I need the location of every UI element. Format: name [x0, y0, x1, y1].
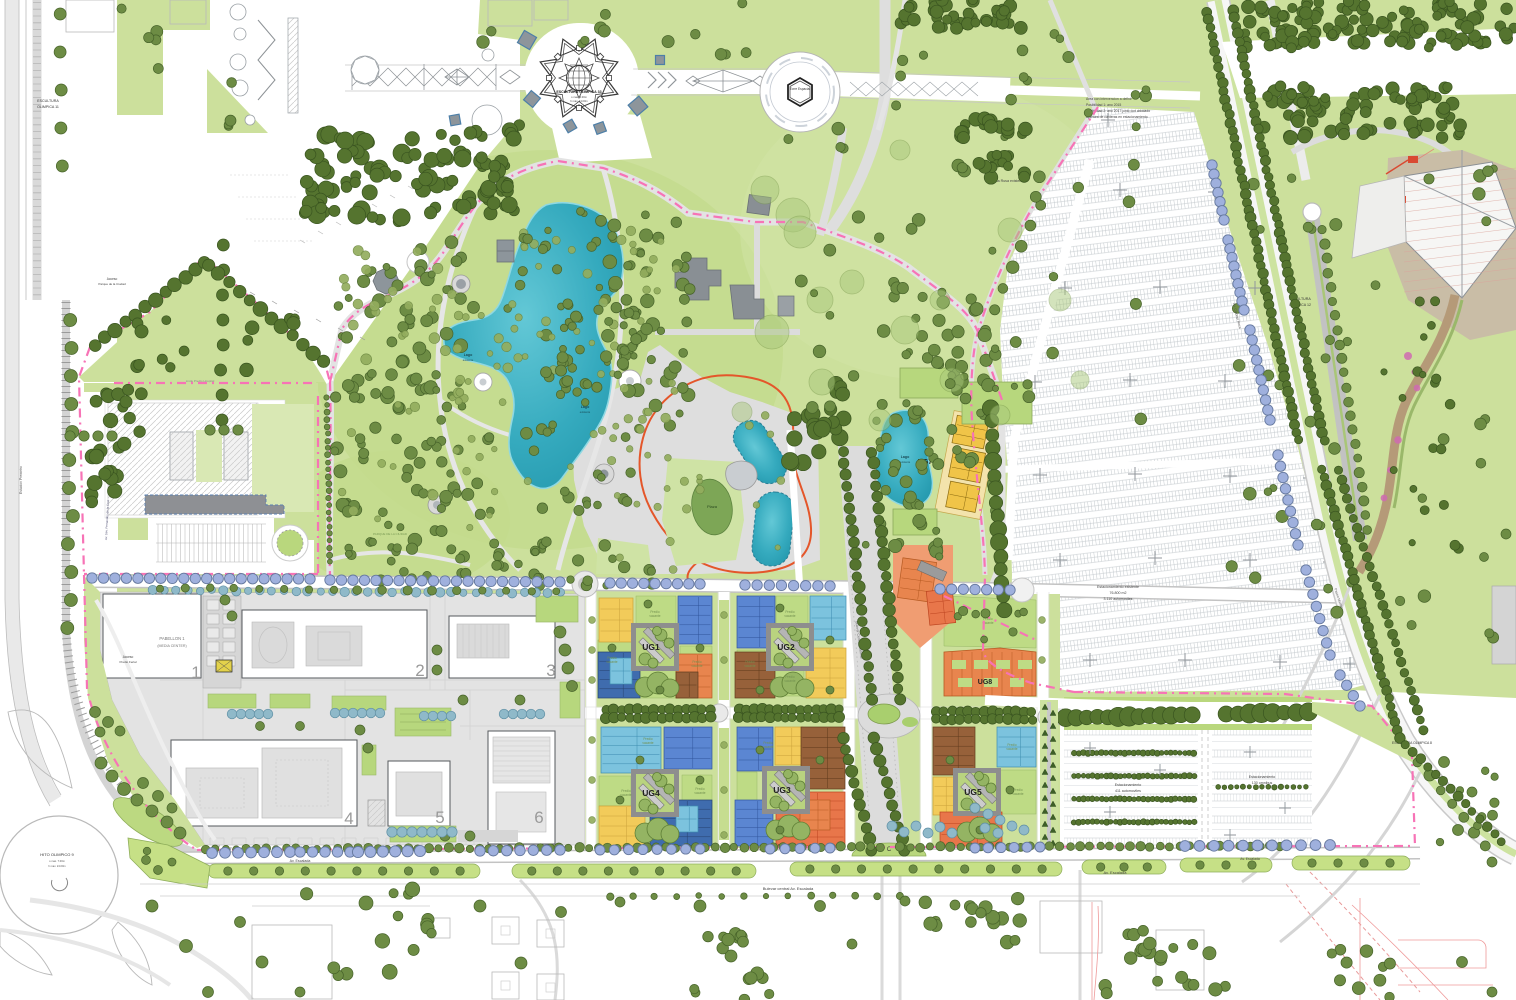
svg-text:411 automoviles: 411 automoviles: [1115, 789, 1141, 793]
svg-text:h max. 44.00m: h max. 44.00m: [570, 99, 587, 103]
svg-text:o max. 5.00m: o max. 5.00m: [571, 95, 587, 99]
svg-text:o max. 7.00m: o max. 7.00m: [49, 859, 65, 863]
svg-text:1: 1: [191, 663, 200, 682]
svg-text:OLIMPICA 11: OLIMPICA 11: [37, 105, 59, 109]
svg-text:Estacionamiento existente: Estacionamiento existente: [1097, 585, 1139, 589]
svg-text:existente: existente: [900, 460, 911, 464]
svg-text:UG8: UG8: [978, 679, 993, 686]
svg-text:Av. Escalada: Av. Escalada: [1240, 857, 1260, 861]
svg-text:Area con intervencion a defini: Area con intervencion a definir: [1086, 97, 1133, 101]
svg-text:vacante: vacante: [784, 679, 795, 683]
svg-text:vacante: vacante: [694, 791, 705, 795]
svg-text:5: 5: [435, 808, 444, 827]
svg-text:Bulevar central Av. Escalada: Bulevar central Av. Escalada: [763, 886, 814, 891]
svg-text:Acceso: Acceso: [107, 277, 118, 281]
svg-text:h max. 24.00m: h max. 24.00m: [48, 864, 65, 868]
svg-text:ESCULTURA OLIMPICA 33: ESCULTURA OLIMPICA 33: [556, 90, 601, 94]
svg-text:vacante: vacante: [606, 660, 617, 664]
svg-text:Posibilidad 1: ano 2015: Posibilidad 1: ano 2015: [1086, 103, 1121, 107]
svg-text:6: 6: [534, 808, 543, 827]
svg-text:PABELLON 1: PABELLON 1: [159, 636, 185, 641]
svg-text:(MEDIA CENTER): (MEDIA CENTER): [157, 644, 186, 648]
svg-text:vacante: vacante: [1012, 792, 1023, 796]
svg-text:Av. Escalada: Av. Escalada: [1104, 870, 1128, 875]
svg-text:vacante: vacante: [691, 664, 702, 668]
svg-text:2: 2: [415, 661, 424, 680]
svg-text:Estacion Premetro: Estacion Premetro: [19, 466, 23, 494]
svg-text:76.800 m2: 76.800 m2: [1110, 591, 1127, 595]
svg-text:UG5: UG5: [964, 787, 982, 797]
svg-text:Plaza: Plaza: [707, 504, 718, 509]
svg-text:4: 4: [344, 809, 353, 828]
svg-text:UG2: UG2: [777, 642, 795, 652]
svg-text:3.110 automoviles: 3.110 automoviles: [1104, 597, 1133, 601]
svg-text:vacante: vacante: [1006, 747, 1017, 751]
svg-text:UG1: UG1: [642, 642, 660, 652]
svg-text:Torre Espacial: Torre Espacial: [790, 87, 810, 91]
svg-text:vacante: vacante: [649, 614, 660, 618]
svg-text:Predio Ferial: Predio Ferial: [119, 660, 136, 664]
svg-text:HITO OLIMPICO 9: HITO OLIMPICO 9: [40, 852, 74, 857]
svg-text:3: 3: [546, 661, 555, 680]
svg-text:ESCULTURA: ESCULTURA: [37, 99, 59, 103]
svg-text:existente: existente: [463, 358, 474, 362]
svg-text:apertura de canteras en estaci: apertura de canteras en estacionamiento: [1086, 115, 1148, 119]
svg-text:vacante: vacante: [744, 664, 755, 668]
svg-text:Acceso: Acceso: [123, 655, 134, 659]
svg-text:vacante: vacante: [762, 745, 773, 749]
svg-text:Av. Escalada: Av. Escalada: [290, 859, 311, 863]
svg-text:Lago: Lago: [464, 353, 473, 357]
svg-text:PARQUE DE LA CIUDAD: PARQUE DE LA CIUDAD: [373, 532, 408, 536]
svg-text:Estacionamiento: Estacionamiento: [1249, 775, 1276, 779]
svg-text:Estacionamiento: Estacionamiento: [1115, 783, 1142, 787]
svg-text:vacante: vacante: [784, 614, 795, 618]
svg-text:existente: existente: [580, 410, 591, 414]
svg-text:vacante: vacante: [642, 741, 653, 745]
svg-text:UG4: UG4: [642, 788, 660, 798]
svg-text:Parque de la Ciudad: Parque de la Ciudad: [98, 282, 126, 286]
svg-text:130 omnibus: 130 omnibus: [1252, 781, 1273, 785]
svg-text:UG3: UG3: [773, 785, 791, 795]
svg-text:Lago: Lago: [901, 455, 910, 459]
